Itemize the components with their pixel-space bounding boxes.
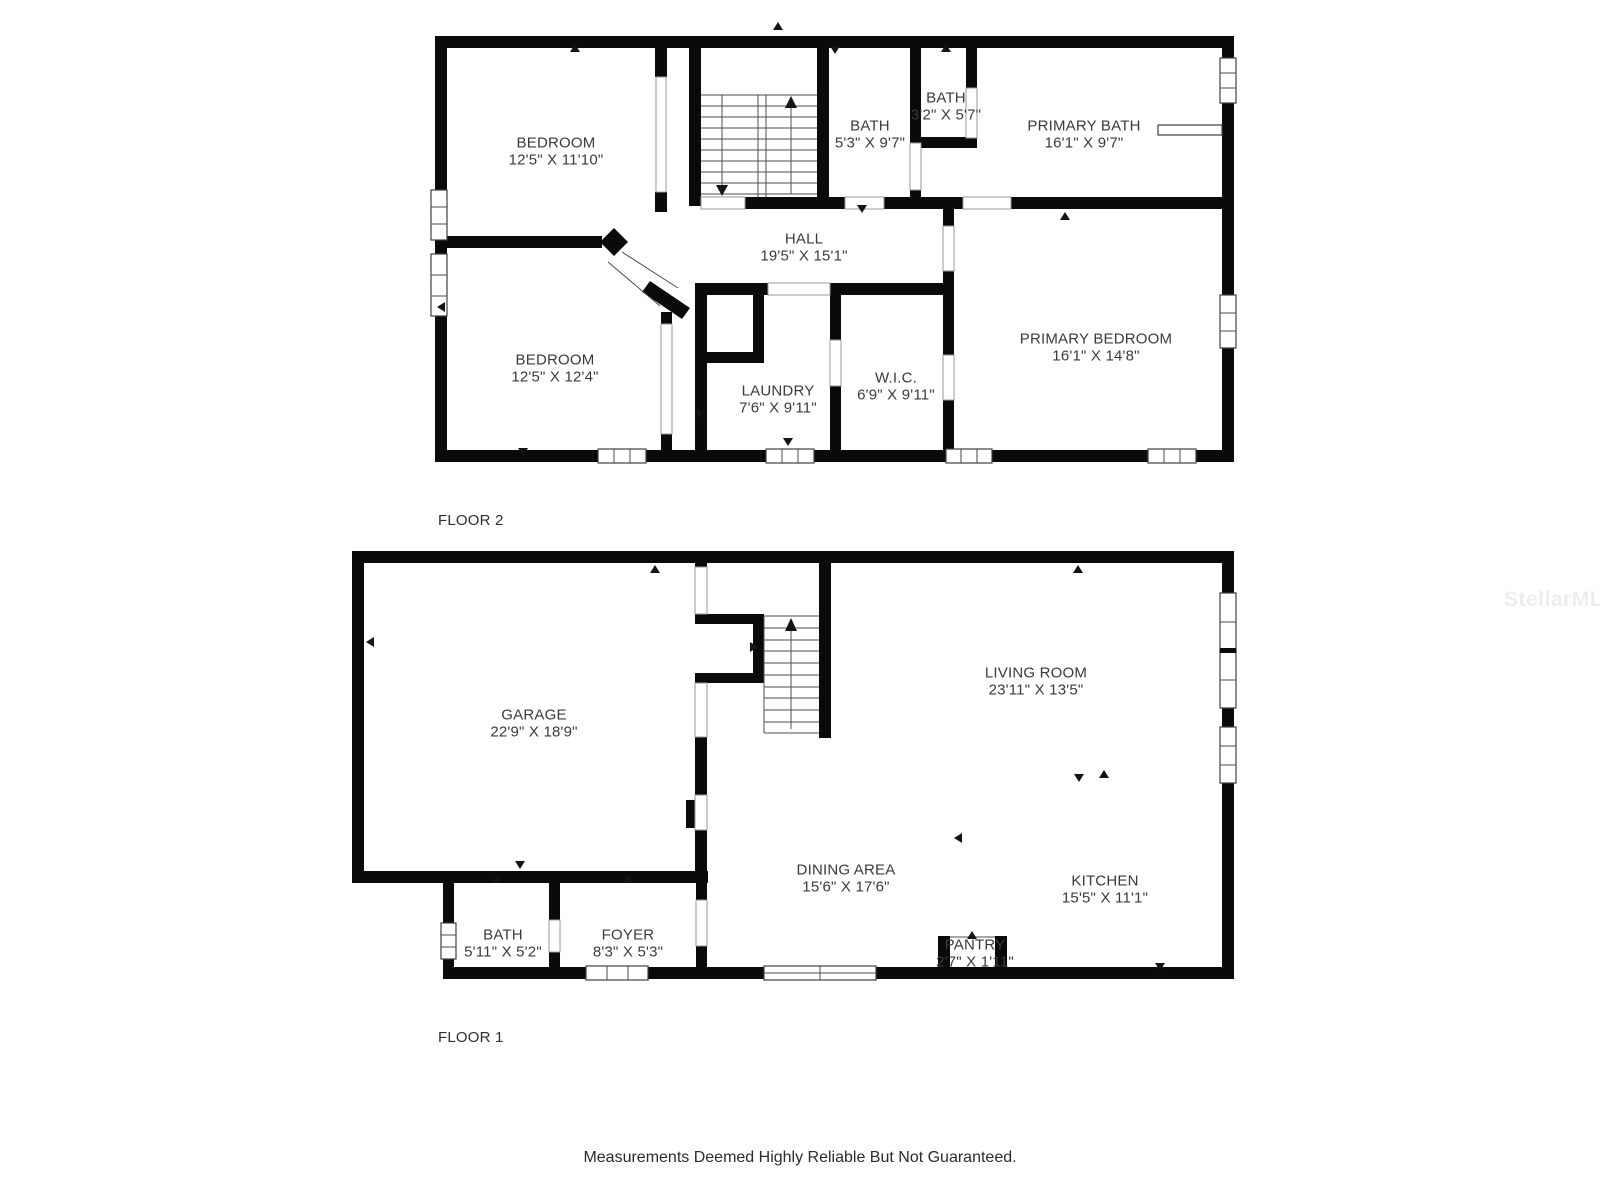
floor1-door-openings (549, 567, 707, 952)
room-name: KITCHEN (1062, 874, 1148, 891)
measurements-disclaimer: Measurements Deemed Highly Reliable But … (583, 1149, 1016, 1167)
room-name: GARAGE (490, 708, 577, 725)
room-label-bath-upper: BATH 5'3" X 9'7" (835, 119, 905, 152)
window-icon (1220, 593, 1236, 708)
window-icon (1148, 449, 1196, 463)
room-label-foyer: FOYER 8'3" X 5'3" (593, 928, 663, 961)
window-icon (1220, 727, 1236, 783)
room-label-bedroom-2: BEDROOM 12'5" X 12'4" (511, 353, 598, 386)
room-dims: 12'5" X 12'4" (511, 369, 598, 386)
room-dims: 5'3" X 9'7" (835, 135, 905, 152)
room-dims: 16'1" X 14'8" (1020, 348, 1172, 365)
room-dims: 2'7" X 1'11" (936, 954, 1014, 971)
room-name: FOYER (593, 928, 663, 945)
room-label-living-room: LIVING ROOM 23'11" X 13'5" (985, 666, 1087, 699)
room-name: DINING AREA (797, 863, 896, 880)
window-icon (1220, 58, 1236, 103)
window-icon (1220, 295, 1236, 348)
room-label-bedroom-1: BEDROOM 12'5" X 11'10" (509, 136, 604, 169)
room-dims: 22'9" X 18'9" (490, 724, 577, 741)
floor1-walls (352, 551, 1234, 979)
room-name: BEDROOM (511, 353, 598, 370)
room-label-bath-floor1: BATH 5'11" X 5'2" (464, 928, 542, 961)
room-label-wic: W.I.C. 6'9" X 9'11" (857, 371, 935, 404)
room-label-bath-small: BATH 3'2" X 5'7" (911, 91, 981, 124)
floor2-stairs-icon (701, 95, 817, 197)
floor2-caption: FLOOR 2 (438, 512, 504, 529)
floor1-caption: FLOOR 1 (438, 1029, 504, 1046)
room-name: PANTRY (936, 938, 1014, 955)
window-icon (586, 966, 648, 980)
window-icon (431, 190, 447, 240)
room-name: BATH (911, 91, 981, 108)
room-name: LIVING ROOM (985, 666, 1087, 683)
room-label-garage: GARAGE 22'9" X 18'9" (490, 708, 577, 741)
room-name: BATH (835, 119, 905, 136)
room-dims: 23'11" X 13'5" (985, 682, 1087, 699)
window-icon (598, 449, 646, 463)
stellar-mls-watermark: StellarMLS (1504, 588, 1600, 612)
room-dims: 16'1" X 9'7" (1027, 135, 1140, 152)
floor1-plan (352, 551, 1236, 980)
room-name: LAUNDRY (739, 384, 817, 401)
floorplan-canvas: BEDROOM 12'5" X 11'10" BATH 5'3" X 9'7" … (0, 0, 1600, 1200)
room-label-hall: HALL 19'5" X 15'1" (760, 232, 847, 265)
room-name: PRIMARY BEDROOM (1020, 332, 1172, 349)
window-icon (441, 923, 456, 959)
sliding-door-icon (764, 966, 876, 980)
room-name: BATH (464, 928, 542, 945)
room-dims: 3'2" X 5'7" (911, 107, 981, 124)
floor1-direction-markers (366, 565, 1165, 971)
room-name: W.I.C. (857, 371, 935, 388)
room-label-laundry: LAUNDRY 7'6" X 9'11" (739, 384, 817, 417)
floor1-stairs-icon (764, 616, 819, 733)
room-name: HALL (760, 232, 847, 249)
room-label-pantry: PANTRY 2'7" X 1'11" (936, 938, 1014, 971)
room-label-primary-bedroom: PRIMARY BEDROOM 16'1" X 14'8" (1020, 332, 1172, 365)
room-label-kitchen: KITCHEN 15'5" X 11'1" (1062, 874, 1148, 907)
room-dims: 5'11" X 5'2" (464, 944, 542, 961)
room-name: PRIMARY BATH (1027, 119, 1140, 136)
room-dims: 7'6" X 9'11" (739, 400, 817, 417)
room-dims: 15'5" X 11'1" (1062, 890, 1148, 907)
window-icon (946, 449, 992, 463)
room-dims: 12'5" X 11'10" (509, 152, 604, 169)
room-name: BEDROOM (509, 136, 604, 153)
window-icon (766, 449, 814, 463)
room-dims: 6'9" X 9'11" (857, 387, 935, 404)
floorplan-drawing (0, 0, 1600, 1200)
room-label-dining-area: DINING AREA 15'6" X 17'6" (797, 863, 896, 896)
room-dims: 19'5" X 15'1" (760, 248, 847, 265)
room-dims: 15'6" X 17'6" (797, 879, 896, 896)
room-dims: 8'3" X 5'3" (593, 944, 663, 961)
room-label-primary-bath: PRIMARY BATH 16'1" X 9'7" (1027, 119, 1140, 152)
